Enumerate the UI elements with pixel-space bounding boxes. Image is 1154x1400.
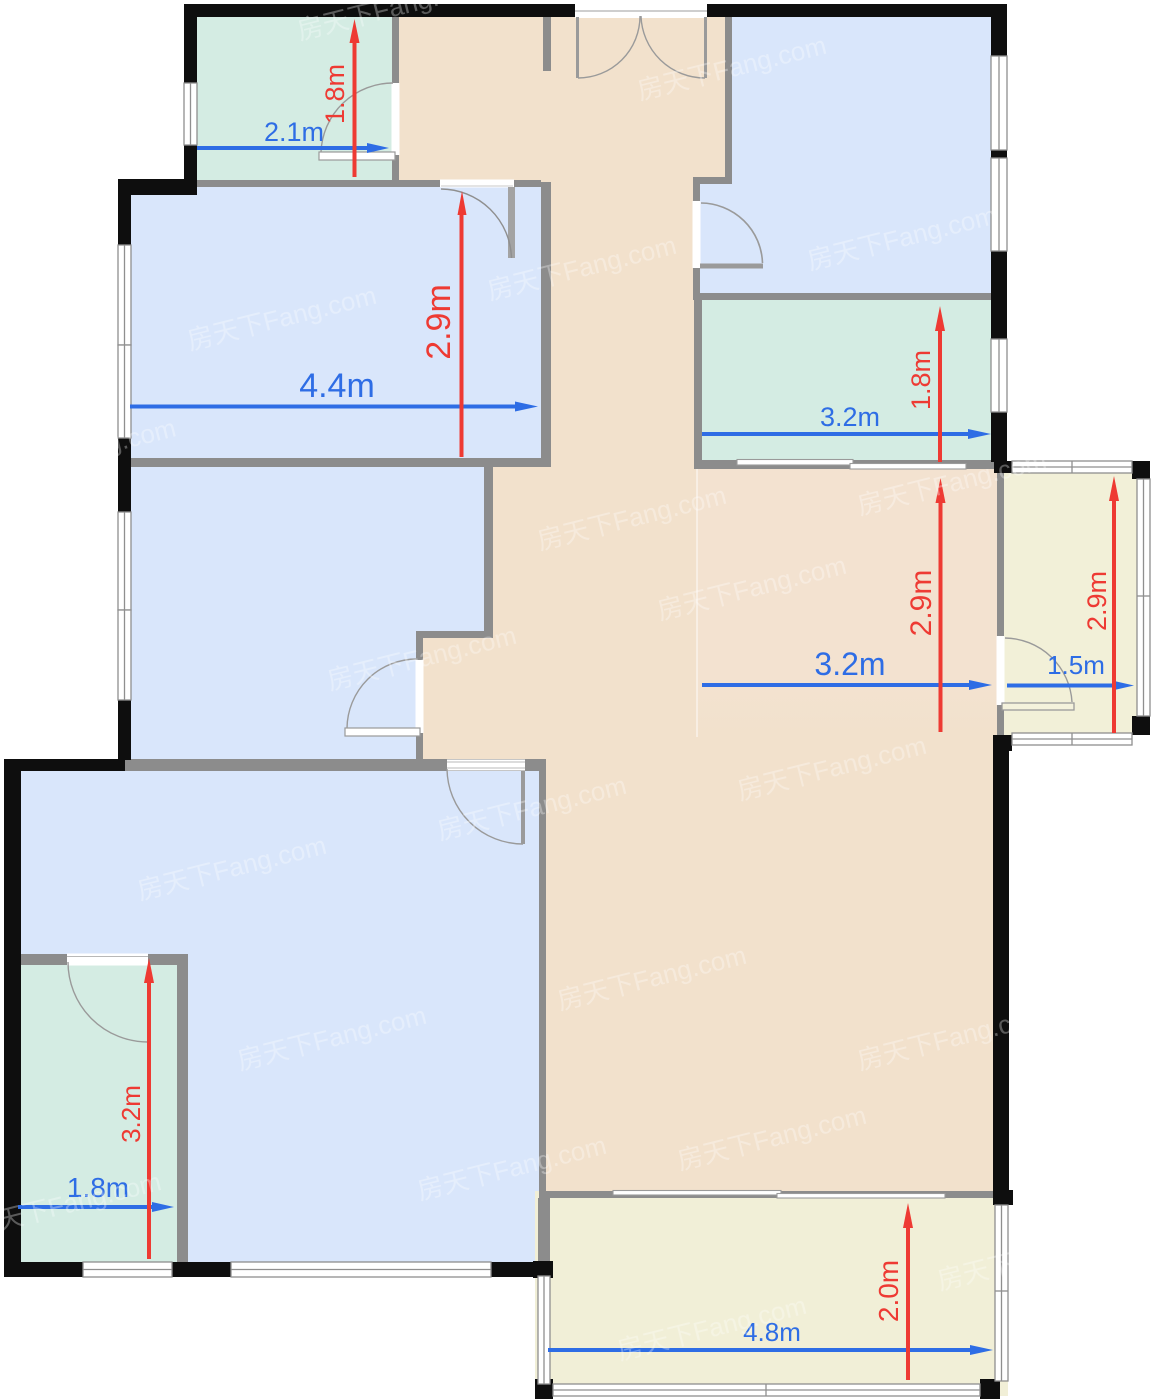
svg-text:3.2m: 3.2m xyxy=(820,402,880,432)
svg-text:2.9m: 2.9m xyxy=(1082,571,1112,631)
svg-text:4.4m: 4.4m xyxy=(299,367,375,405)
svg-text:2.1m: 2.1m xyxy=(264,117,324,147)
svg-text:1.8m: 1.8m xyxy=(320,64,350,124)
svg-text:1.5m: 1.5m xyxy=(1047,650,1105,680)
svg-text:1.8m: 1.8m xyxy=(906,350,936,410)
svg-text:2.9m: 2.9m xyxy=(420,284,458,360)
svg-text:2.0m: 2.0m xyxy=(873,1260,904,1322)
svg-text:3.2m: 3.2m xyxy=(116,1085,146,1143)
svg-text:3.2m: 3.2m xyxy=(814,646,885,682)
svg-text:2.9m: 2.9m xyxy=(905,570,938,637)
